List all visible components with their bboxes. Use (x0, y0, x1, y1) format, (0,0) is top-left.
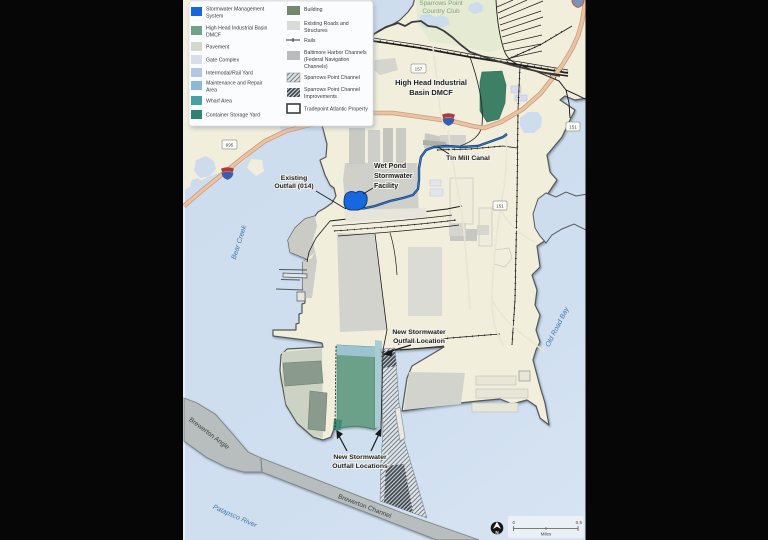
svg-text:Structures: Structures (304, 28, 328, 34)
svg-text:157: 157 (415, 67, 423, 72)
svg-text:Container Storage Yard: Container Storage Yard (206, 113, 260, 119)
svg-text:Existing Roads and: Existing Roads and (304, 21, 349, 27)
svg-text:Area: Area (206, 88, 217, 94)
svg-text:151: 151 (569, 125, 577, 130)
svg-text:Wharf Area: Wharf Area (206, 99, 232, 105)
svg-text:Sparrows Point Channel: Sparrows Point Channel (304, 75, 360, 81)
svg-text:Basin DMCF: Basin DMCF (409, 88, 453, 97)
svg-text:151: 151 (496, 204, 504, 209)
svg-text:(Federal Navigation: (Federal Navigation (304, 57, 349, 63)
svg-text:0.5: 0.5 (576, 520, 583, 525)
svg-text:System: System (206, 14, 223, 20)
svg-text:Channels): Channels) (304, 64, 328, 70)
svg-text:Gate Complex: Gate Complex (206, 58, 240, 64)
svg-text:Building: Building (304, 7, 323, 13)
svg-text:Tradepoint Atlantic Property: Tradepoint Atlantic Property (304, 107, 368, 113)
svg-text:Sparrows Point Channel: Sparrows Point Channel (304, 87, 360, 93)
svg-text:Existing: Existing (281, 175, 307, 182)
svg-text:DMCF: DMCF (206, 33, 221, 39)
svg-text:Facility: Facility (374, 183, 398, 190)
svg-text:Outfall (014): Outfall (014) (274, 183, 313, 190)
svg-text:Miles: Miles (541, 532, 552, 537)
svg-text:New Stormwater: New Stormwater (333, 454, 387, 461)
svg-text:695: 695 (226, 143, 234, 148)
svg-text:0: 0 (513, 520, 516, 525)
svg-text:Rails: Rails (304, 38, 316, 44)
svg-text:Stormwater Management: Stormwater Management (206, 7, 265, 13)
svg-text:Outfall Locations: Outfall Locations (332, 463, 388, 470)
svg-text:Intermodal/Rail Yard: Intermodal/Rail Yard (206, 71, 253, 77)
svg-text:Tin Mill Canal: Tin Mill Canal (446, 155, 490, 162)
svg-text:Pavement: Pavement (206, 45, 230, 51)
svg-text:Maintenance and Repair: Maintenance and Repair (206, 81, 263, 87)
svg-text:Stormwater: Stormwater (374, 173, 413, 180)
svg-text:High Head Industrial: High Head Industrial (395, 78, 467, 87)
svg-text:New Stormwater: New Stormwater (392, 329, 446, 336)
svg-text:High Head Industrial Basin: High Head Industrial Basin (206, 26, 268, 32)
svg-text:Baltimore Harbor Channels: Baltimore Harbor Channels (304, 50, 367, 56)
svg-text:Country Club: Country Club (422, 8, 460, 15)
svg-text:Wet Pond: Wet Pond (374, 163, 406, 170)
svg-text:Sparrows Point: Sparrows Point (419, 0, 463, 7)
svg-text:Outfall Location: Outfall Location (393, 338, 445, 345)
svg-text:Improvements: Improvements (304, 94, 337, 100)
